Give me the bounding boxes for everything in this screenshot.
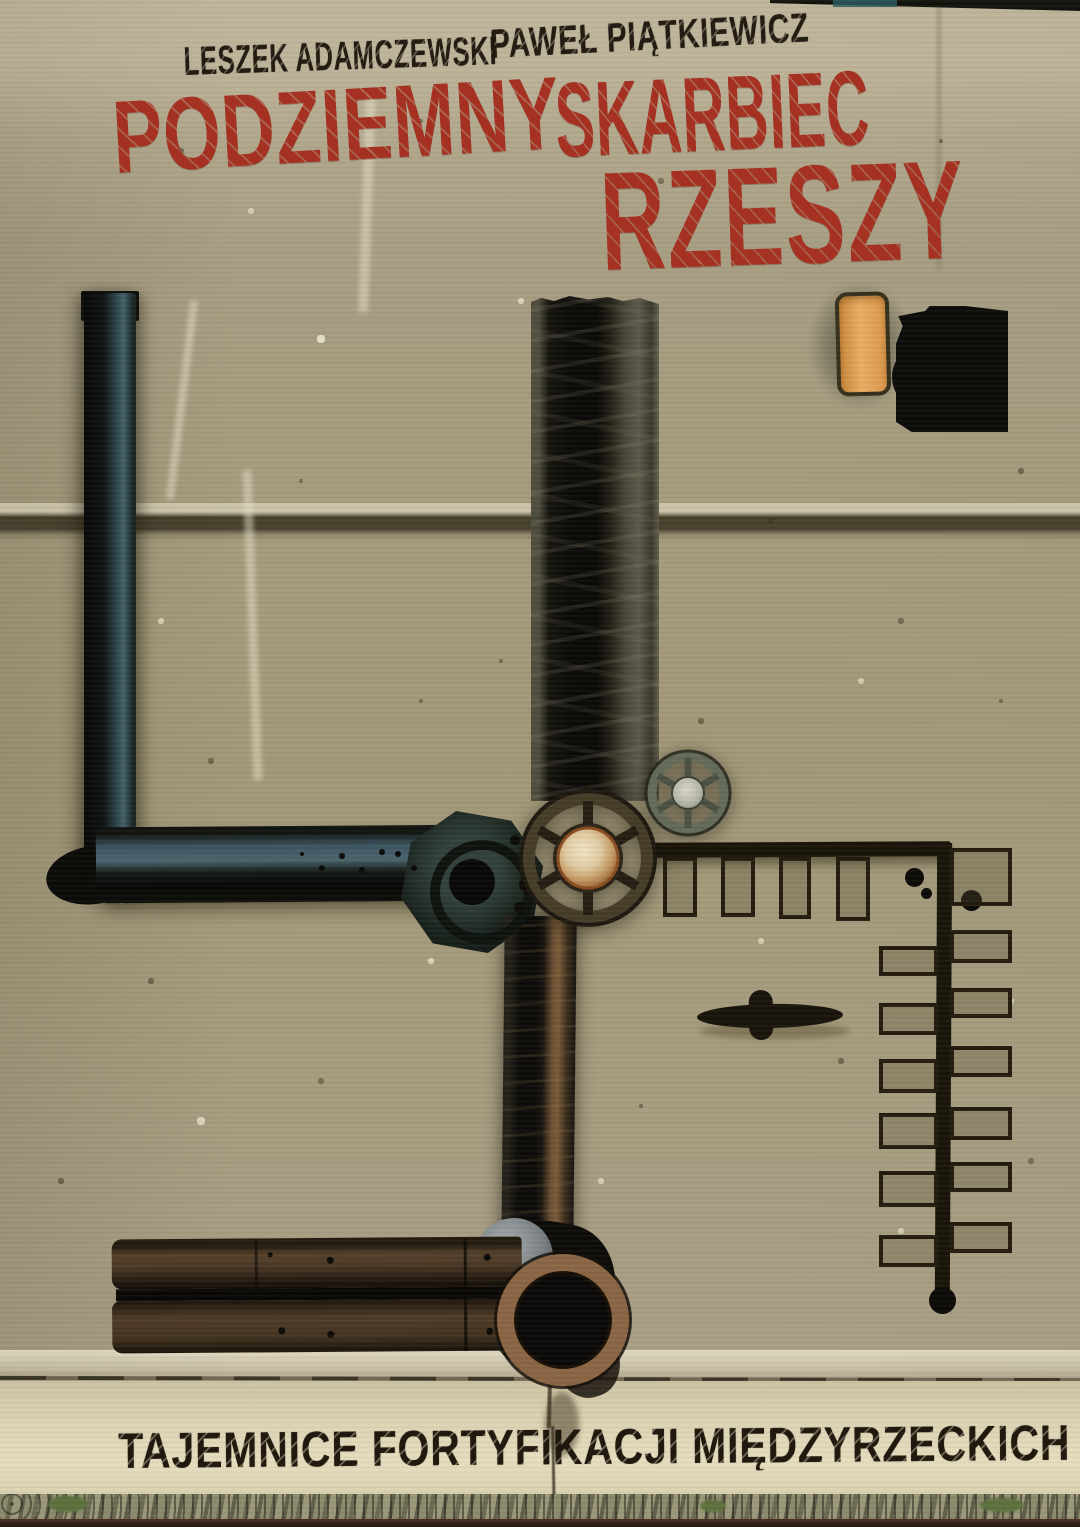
title-word-rzeszy: RZESZY bbox=[598, 139, 968, 292]
flange-hub bbox=[449, 859, 495, 905]
subtitle: TAJEMNICE FORTYFIKACJI MIĘDZYRZECKICH bbox=[118, 1418, 1071, 1476]
rivets bbox=[300, 852, 304, 856]
bunker-plate bbox=[950, 988, 1012, 1018]
rail-beam-bottom bbox=[112, 1299, 522, 1354]
bunker-plate bbox=[950, 1222, 1012, 1253]
bunker-plate bbox=[721, 857, 755, 917]
title-word-podziemny: PODZIEMNY bbox=[110, 61, 562, 189]
map-dot bbox=[905, 868, 924, 887]
scan-top-edge bbox=[770, 0, 1080, 11]
bunker-plate bbox=[950, 1107, 1012, 1140]
map-end-dot bbox=[929, 1287, 956, 1314]
orange-marker bbox=[835, 291, 892, 396]
rail-seam bbox=[255, 1240, 258, 1288]
bunker-plate bbox=[879, 1003, 938, 1035]
steel-bar-left-vertical bbox=[84, 293, 136, 893]
bunker-plate bbox=[879, 1059, 938, 1093]
formwork-seam bbox=[166, 300, 198, 499]
steel-pipe-bottom-vertical bbox=[501, 916, 576, 1249]
book-cover: LESZEK ADAMCZEWSKI PAWEŁ PIĄTKIEWICZ POD… bbox=[0, 0, 1080, 1527]
rail-beam-assembly bbox=[112, 1237, 523, 1356]
bunker-plate bbox=[879, 1235, 938, 1267]
bunker-plate bbox=[950, 930, 1012, 963]
author-name-right: PAWEŁ PIĄTKIEWICZ bbox=[489, 7, 810, 65]
rusty-ring bbox=[497, 1254, 629, 1386]
bunker-plate bbox=[950, 848, 1012, 906]
valve-wheel-small-icon bbox=[633, 738, 743, 848]
map-dot bbox=[921, 888, 932, 899]
steel-pipe-top-vertical bbox=[531, 296, 659, 801]
bunker-plate bbox=[950, 1046, 1012, 1077]
bunker-plate bbox=[779, 857, 811, 919]
bunker-plate bbox=[879, 946, 938, 976]
bunker-plate bbox=[950, 1162, 1012, 1192]
gravel-strip bbox=[0, 1494, 1080, 1521]
concrete-specks bbox=[0, 0, 2, 2]
scan-top-edge-teal bbox=[833, 0, 897, 7]
scan-bottom-edge bbox=[0, 1519, 1080, 1527]
black-opening-round bbox=[892, 344, 958, 410]
rail-rivets bbox=[268, 1252, 273, 1257]
grass-tuft bbox=[48, 1496, 88, 1512]
bunker-plate bbox=[879, 1113, 938, 1149]
plane-fuselage bbox=[749, 990, 774, 1040]
rail-beam-top bbox=[112, 1237, 522, 1290]
grass-tuft bbox=[700, 1500, 726, 1512]
bunker-plate bbox=[879, 1171, 938, 1207]
bunker-plate bbox=[836, 857, 870, 921]
grass-tuft bbox=[980, 1498, 1024, 1512]
